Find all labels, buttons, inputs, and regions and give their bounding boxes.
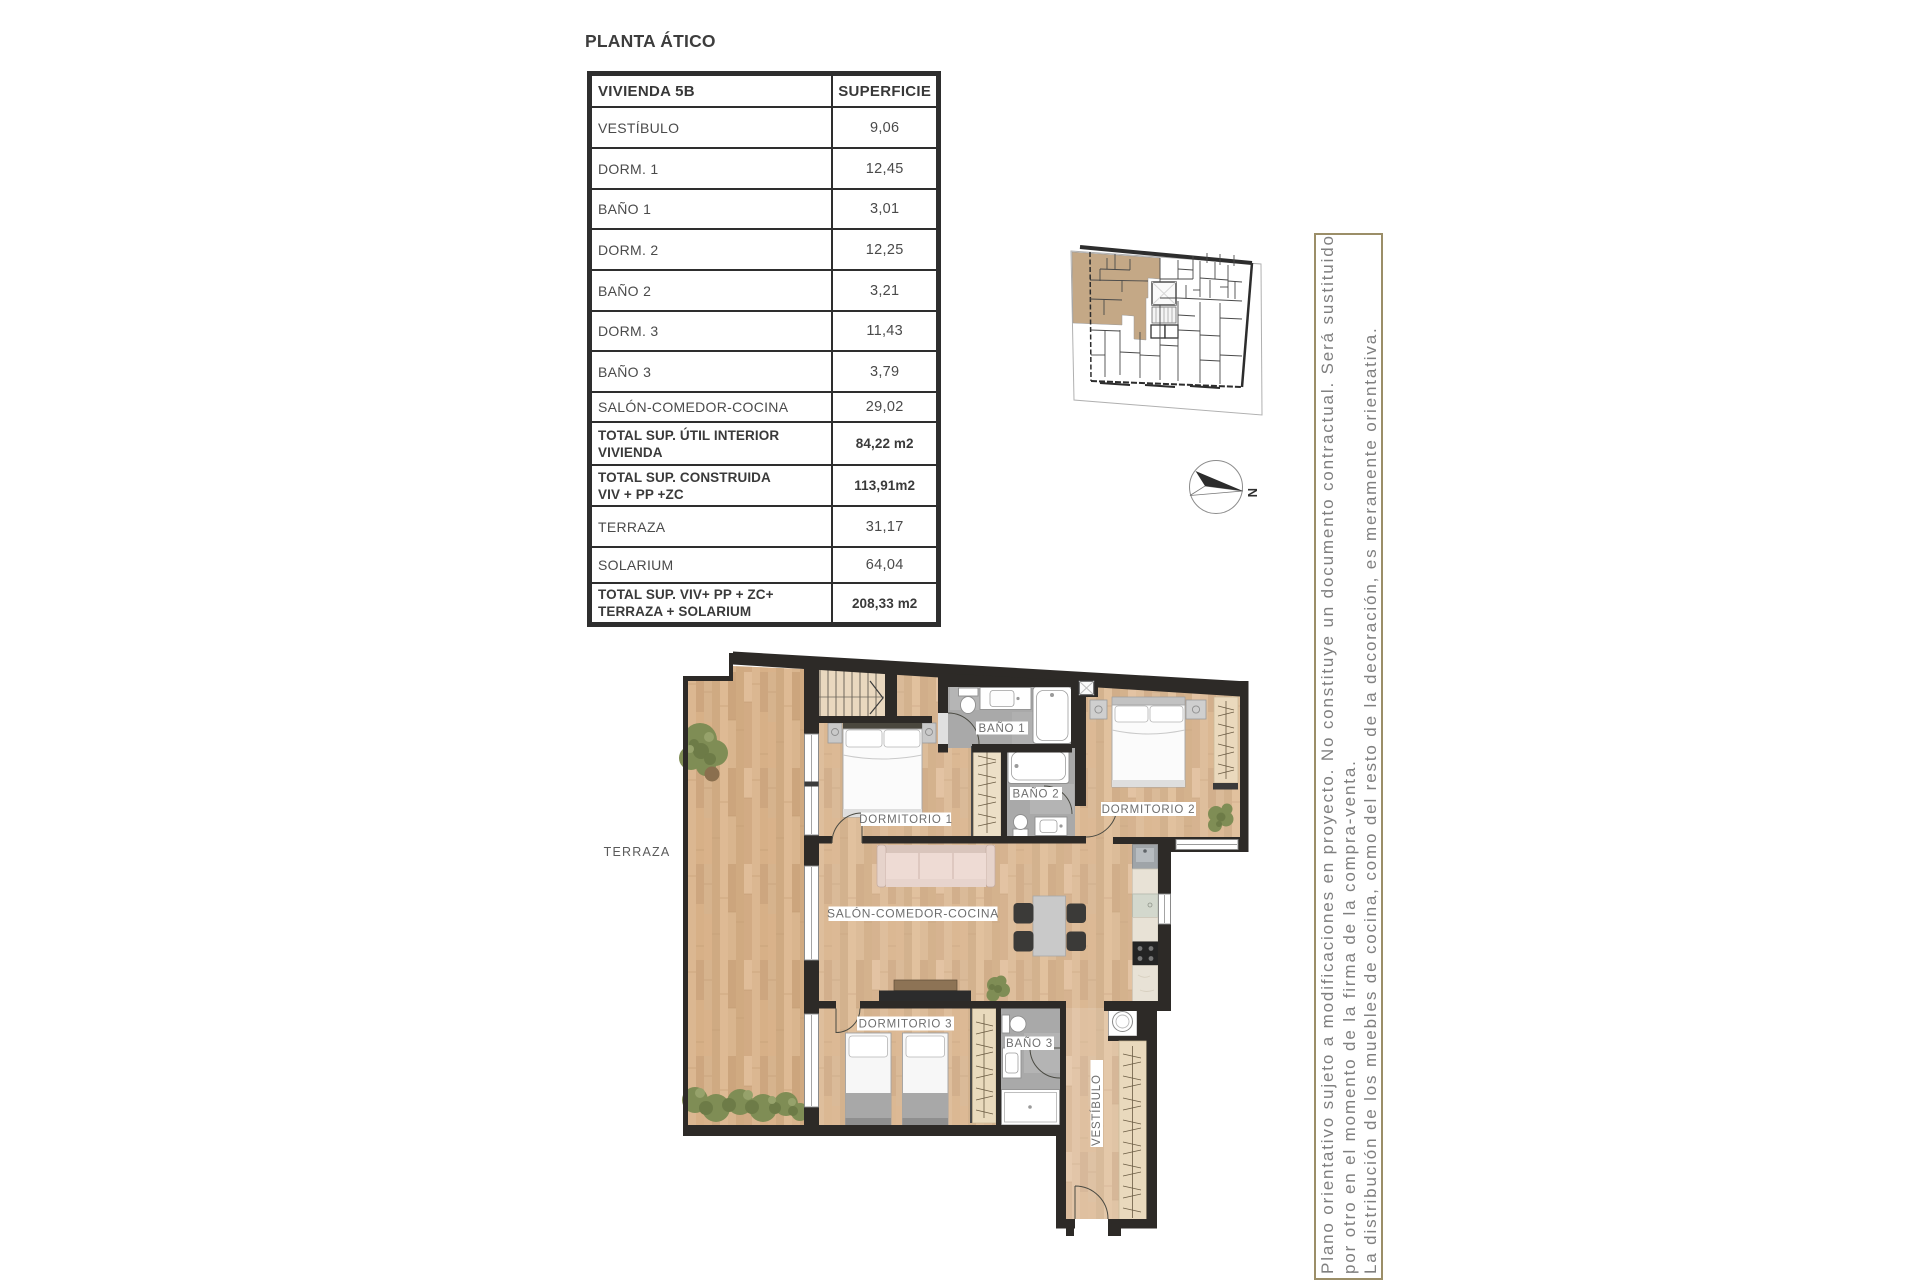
svg-text:DORMITORIO 3: DORMITORIO 3 [859, 1018, 953, 1030]
svg-text:N: N [1245, 488, 1260, 497]
svg-text:SALÓN-COMEDOR-COCINA: SALÓN-COMEDOR-COCINA [827, 906, 999, 921]
svg-text:DORMITORIO 1: DORMITORIO 1 [859, 814, 953, 826]
svg-text:BAÑO 1: BAÑO 1 [979, 722, 1026, 735]
svg-text:VESTÍBULO: VESTÍBULO [1090, 1074, 1103, 1146]
svg-text:BAÑO 3: BAÑO 3 [1006, 1037, 1053, 1050]
svg-text:BAÑO 2: BAÑO 2 [1013, 787, 1060, 800]
svg-text:DORMITORIO 2: DORMITORIO 2 [1102, 804, 1196, 816]
svg-text:TERRAZA: TERRAZA [604, 845, 671, 859]
